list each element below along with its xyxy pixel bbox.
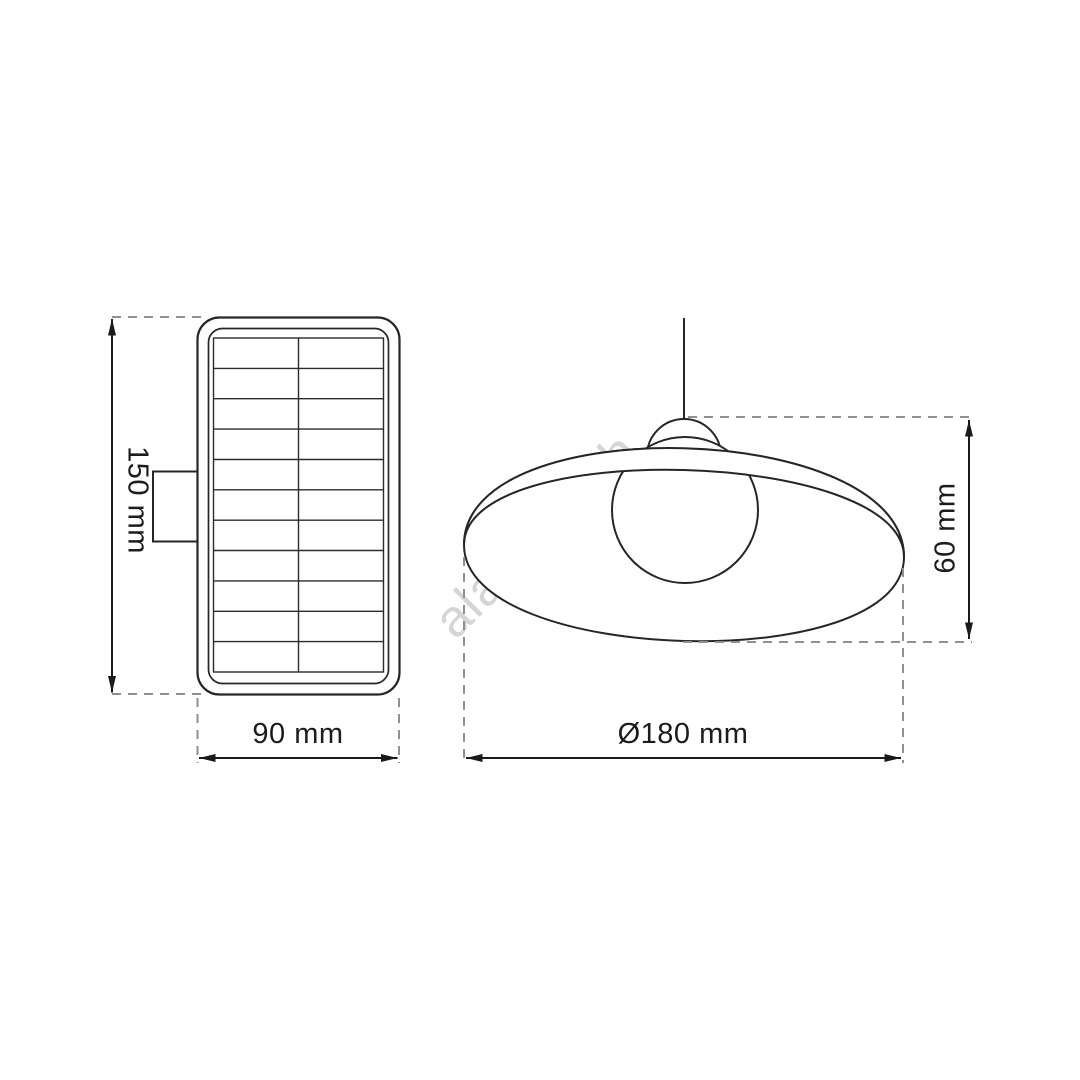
product-dimension-diagram: alasans.ch 150 mm 90 mm [0, 0, 1080, 1080]
panel-mount-bracket [153, 472, 200, 542]
pendant-lamp-view [464, 318, 904, 641]
panel-width-label: 90 mm [252, 718, 343, 750]
lamp-height-label: 60 mm [930, 482, 962, 573]
dimension-diagram-canvas: alasans.ch 150 mm 90 mm [0, 0, 1080, 1080]
lamp-diameter-label: Ø180 mm [618, 718, 749, 750]
panel-height-label: 150 mm [121, 446, 153, 554]
solar-panel-view [153, 318, 400, 695]
panel-width-dimension: 90 mm [198, 698, 400, 763]
